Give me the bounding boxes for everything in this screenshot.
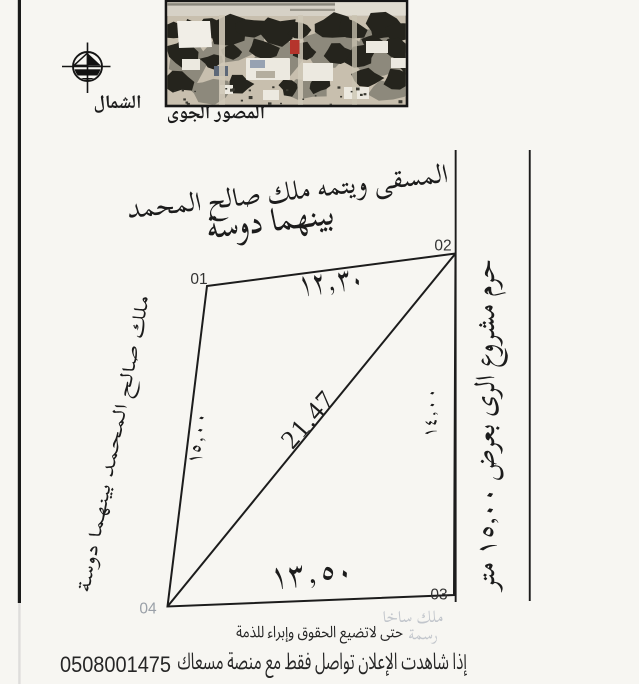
- svg-text:0508001475: 0508001475: [60, 652, 171, 677]
- svg-text:04: 04: [139, 601, 157, 618]
- svg-text:03: 03: [430, 587, 447, 604]
- svg-text:02: 02: [434, 238, 451, 255]
- svg-text:01: 01: [190, 271, 207, 288]
